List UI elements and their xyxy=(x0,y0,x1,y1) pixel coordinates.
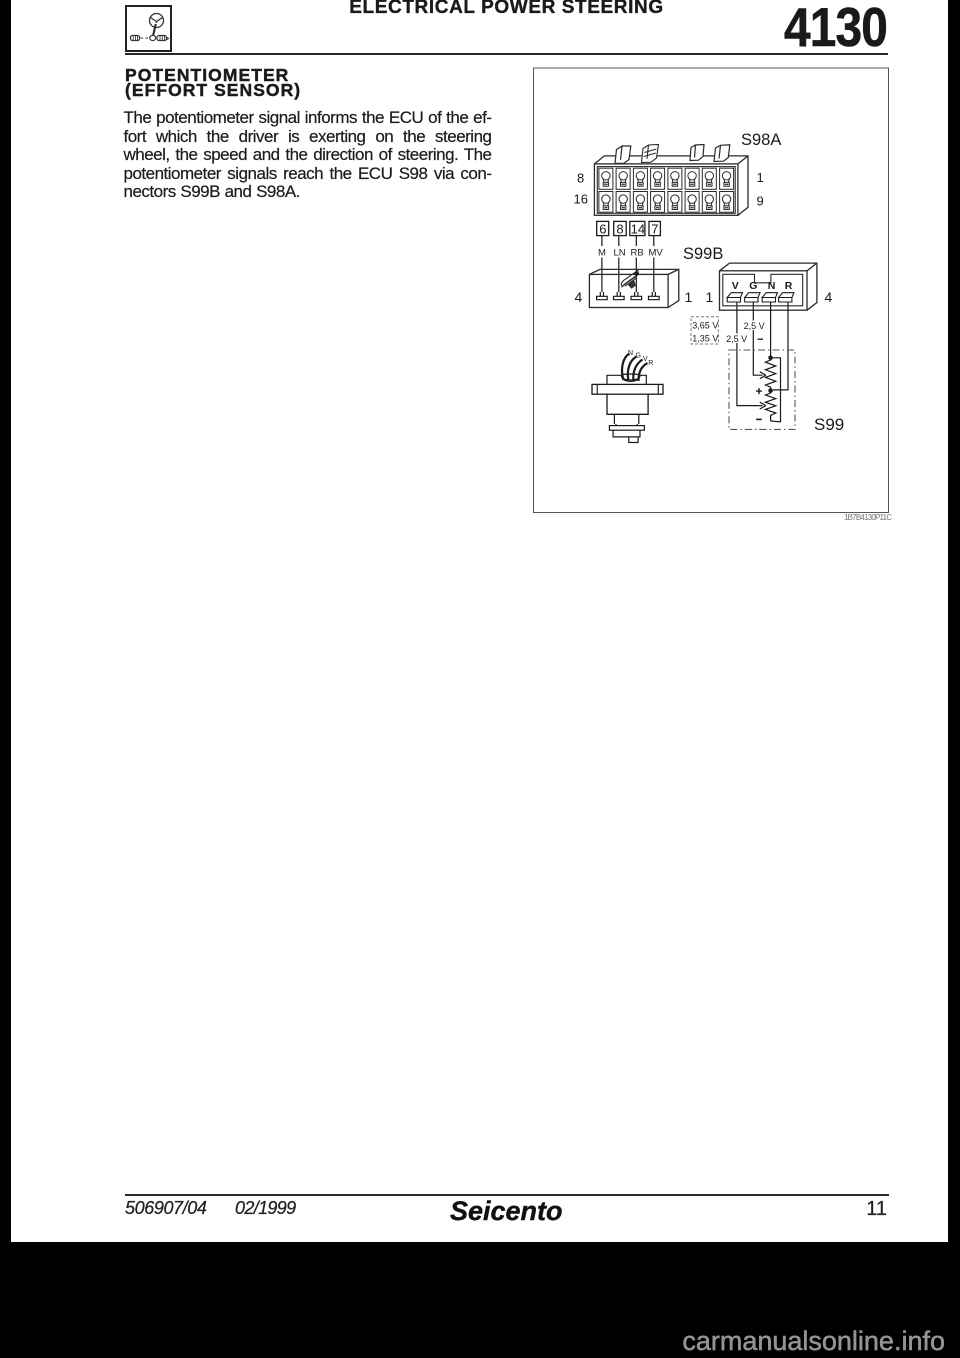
svg-text:3,65 V: 3,65 V xyxy=(692,321,718,331)
svg-text:2,5 V: 2,5 V xyxy=(726,334,747,344)
svg-text:R: R xyxy=(648,360,653,367)
svg-text:6: 6 xyxy=(599,221,606,236)
svg-text:R: R xyxy=(785,280,793,292)
svg-text:S98A: S98A xyxy=(741,131,781,149)
svg-text:8: 8 xyxy=(577,171,584,186)
svg-text:2,5 V: 2,5 V xyxy=(744,321,765,331)
svg-text:G: G xyxy=(749,280,757,292)
svg-text:1: 1 xyxy=(685,289,693,305)
svg-text:MV: MV xyxy=(649,248,664,259)
svg-text:M: M xyxy=(598,248,606,259)
svg-text:N: N xyxy=(628,350,633,357)
svg-text:16: 16 xyxy=(574,192,588,207)
svg-text:1,35 V: 1,35 V xyxy=(692,334,718,344)
svg-text:LN: LN xyxy=(614,248,626,259)
svg-text:V: V xyxy=(732,280,739,292)
svg-text:8: 8 xyxy=(616,221,623,236)
svg-text:14: 14 xyxy=(631,221,645,236)
svg-text:G: G xyxy=(636,353,641,360)
svg-text:4: 4 xyxy=(825,289,833,305)
svg-text:S99: S99 xyxy=(814,415,844,434)
svg-text:7: 7 xyxy=(651,221,658,236)
svg-text:S99B: S99B xyxy=(683,245,723,263)
svg-text:4: 4 xyxy=(575,289,583,305)
svg-text:9: 9 xyxy=(757,194,764,209)
svg-text:RB: RB xyxy=(631,248,644,259)
svg-text:1: 1 xyxy=(757,170,764,185)
svg-text:N: N xyxy=(768,280,776,292)
svg-text:1: 1 xyxy=(706,289,714,305)
